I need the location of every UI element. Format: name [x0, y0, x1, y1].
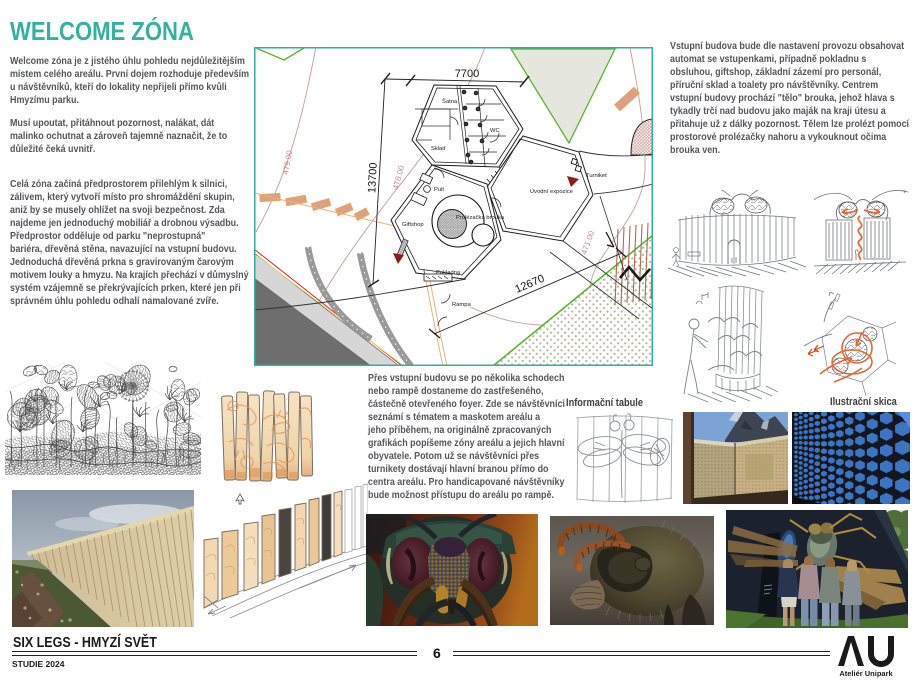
svg-text:Ateliér Unipark: Ateliér Unipark: [839, 669, 893, 678]
svg-text:Giftshop: Giftshop: [402, 222, 424, 228]
svg-text:Prolézačka brouka: Prolézačka brouka: [456, 215, 505, 221]
svg-text:WC: WC: [490, 128, 500, 134]
svg-text:Rampa: Rampa: [452, 302, 471, 308]
svg-text:Pult: Pult: [434, 187, 444, 193]
svg-text:13700: 13700: [366, 162, 380, 193]
svg-text:Turniket: Turniket: [586, 173, 607, 179]
svg-text:7700: 7700: [455, 68, 479, 80]
svg-text:Šatna: Šatna: [442, 98, 458, 105]
svg-text:Sklad: Sklad: [431, 146, 446, 152]
svg-text:Pokladna: Pokladna: [436, 270, 461, 276]
svg-text:Úvodní expozice: Úvodní expozice: [530, 188, 573, 195]
